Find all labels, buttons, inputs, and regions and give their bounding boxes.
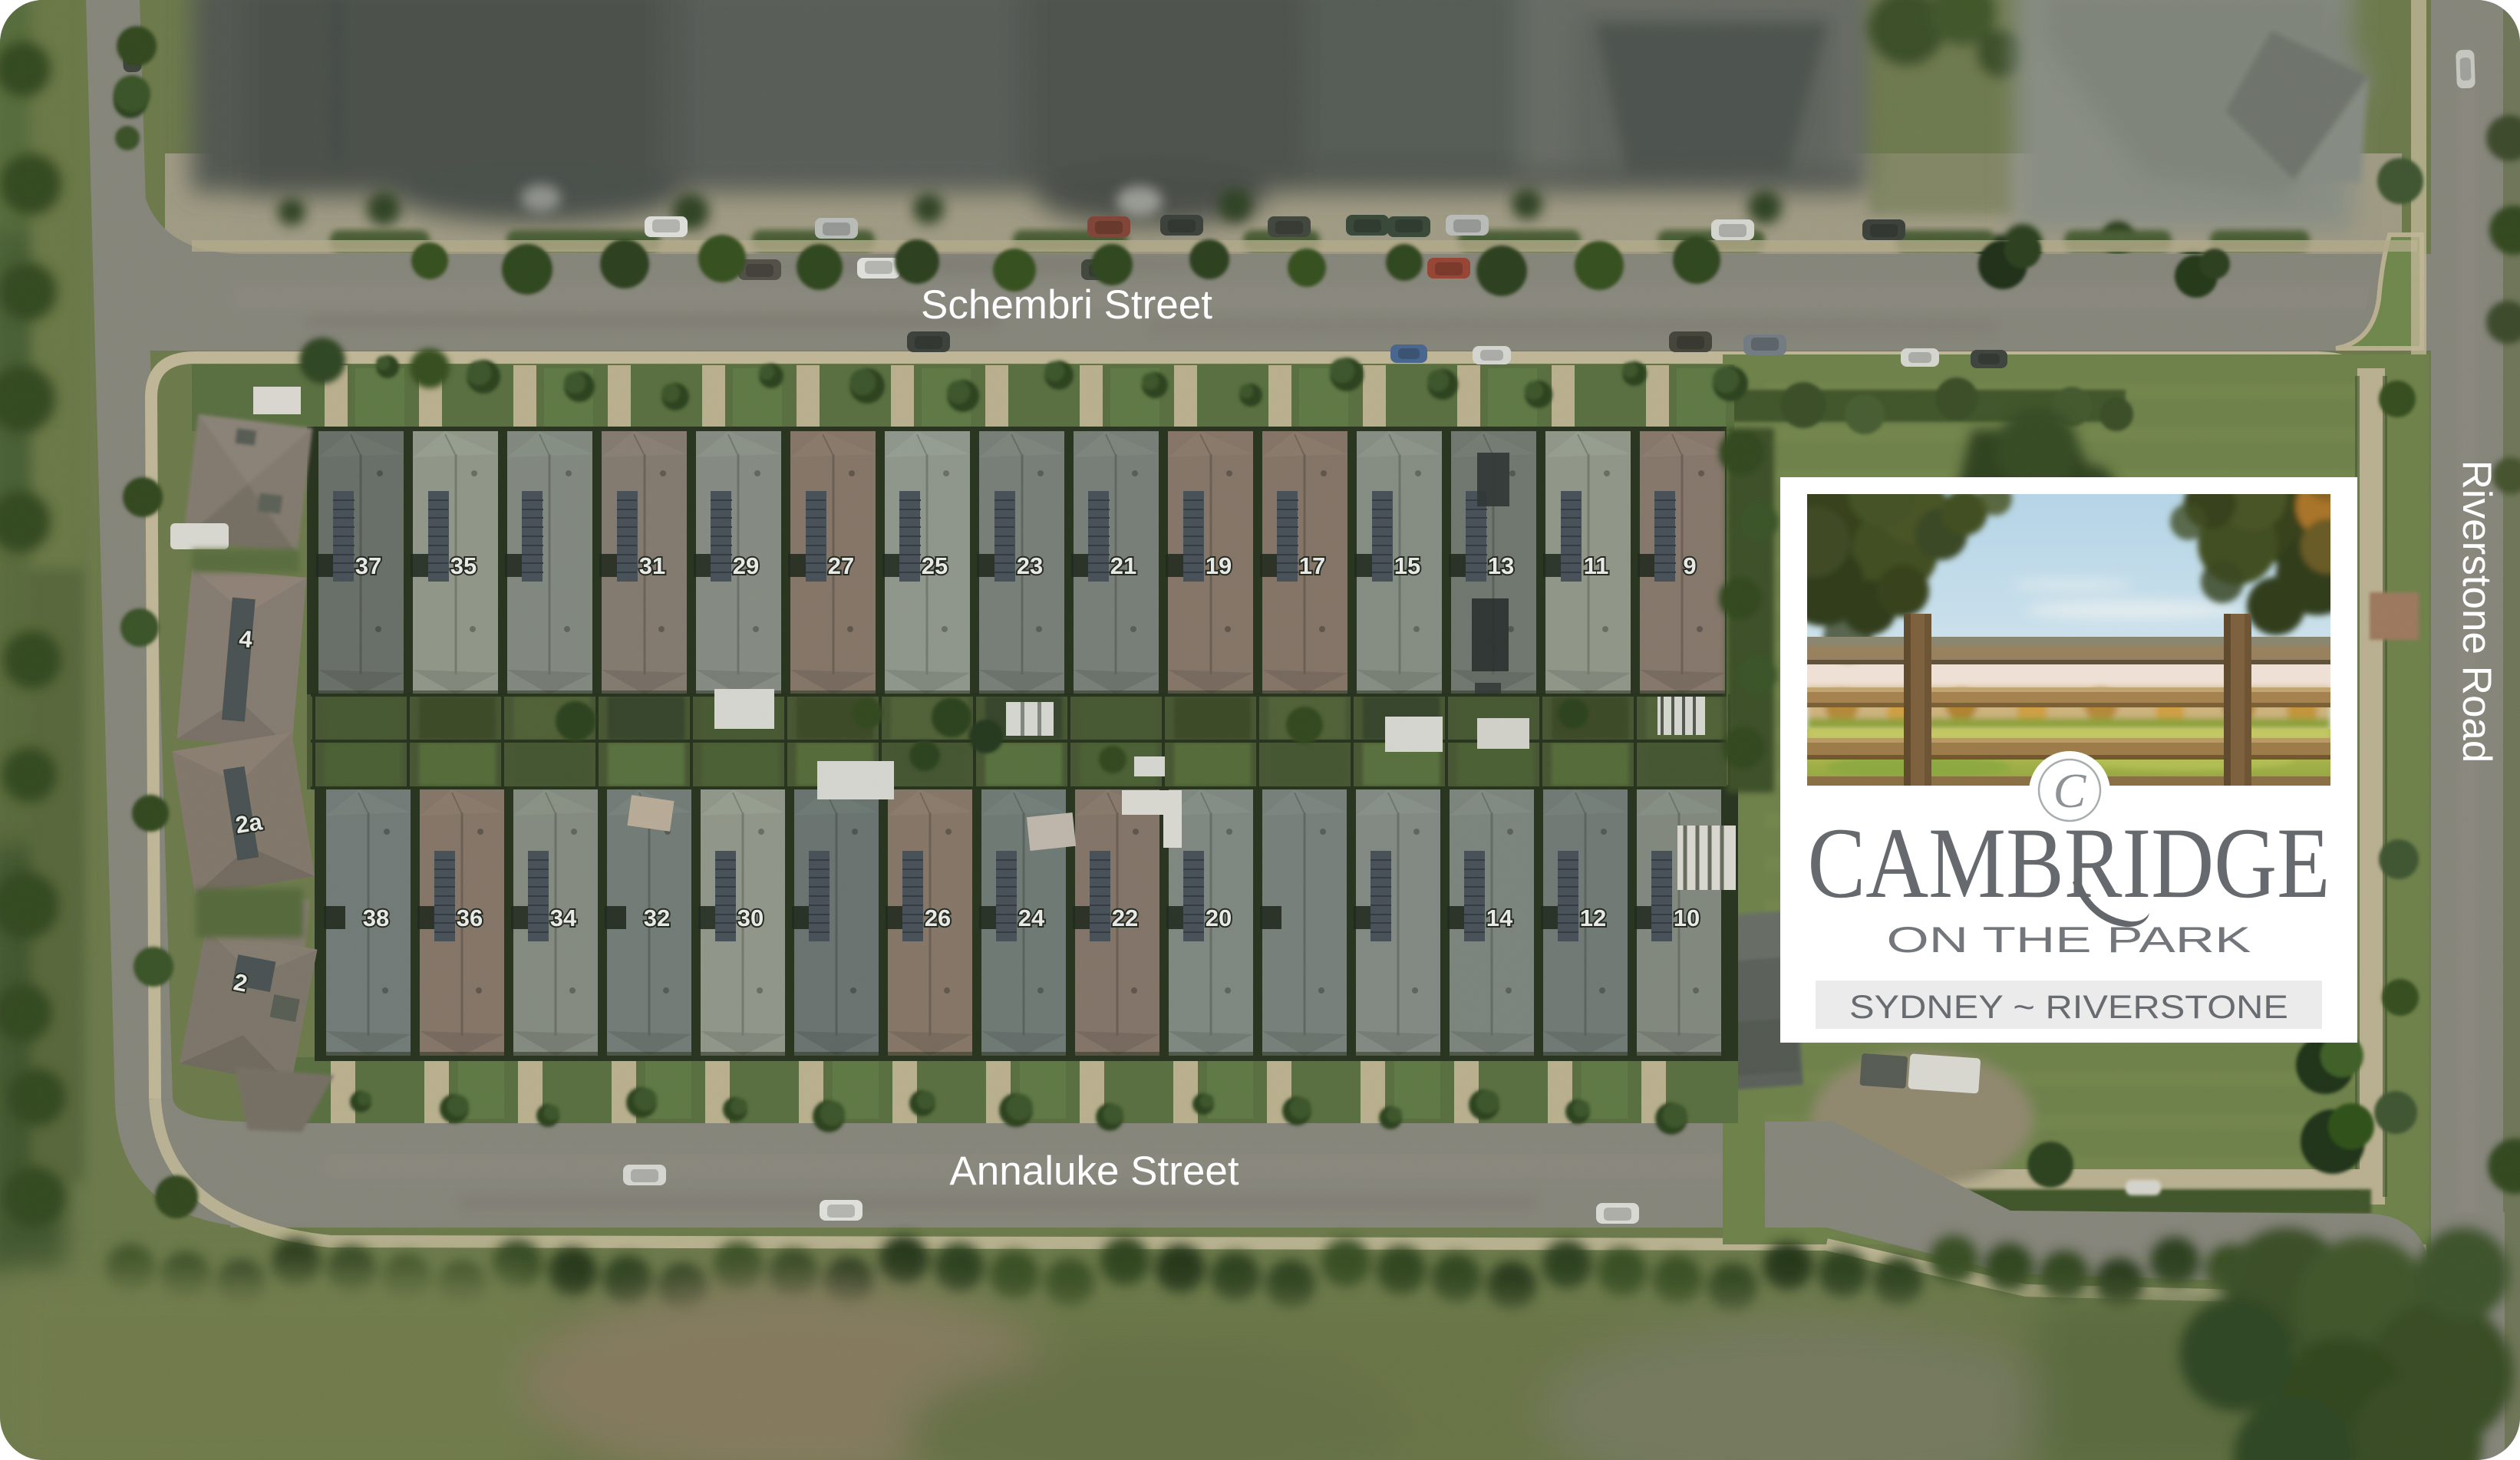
- svg-text:Riverstone Road: Riverstone Road: [2454, 460, 2499, 763]
- svg-text:CAMBRIDGE: CAMBRIDGE: [1808, 806, 2330, 919]
- svg-text:Annaluke Street: Annaluke Street: [949, 1149, 1239, 1194]
- svg-text:Schembri Street: Schembri Street: [921, 282, 1212, 328]
- svg-text:SYDNEY ~ RIVERSTONE: SYDNEY ~ RIVERSTONE: [1849, 989, 2288, 1026]
- svg-text:ON THE PARK: ON THE PARK: [1887, 919, 2251, 960]
